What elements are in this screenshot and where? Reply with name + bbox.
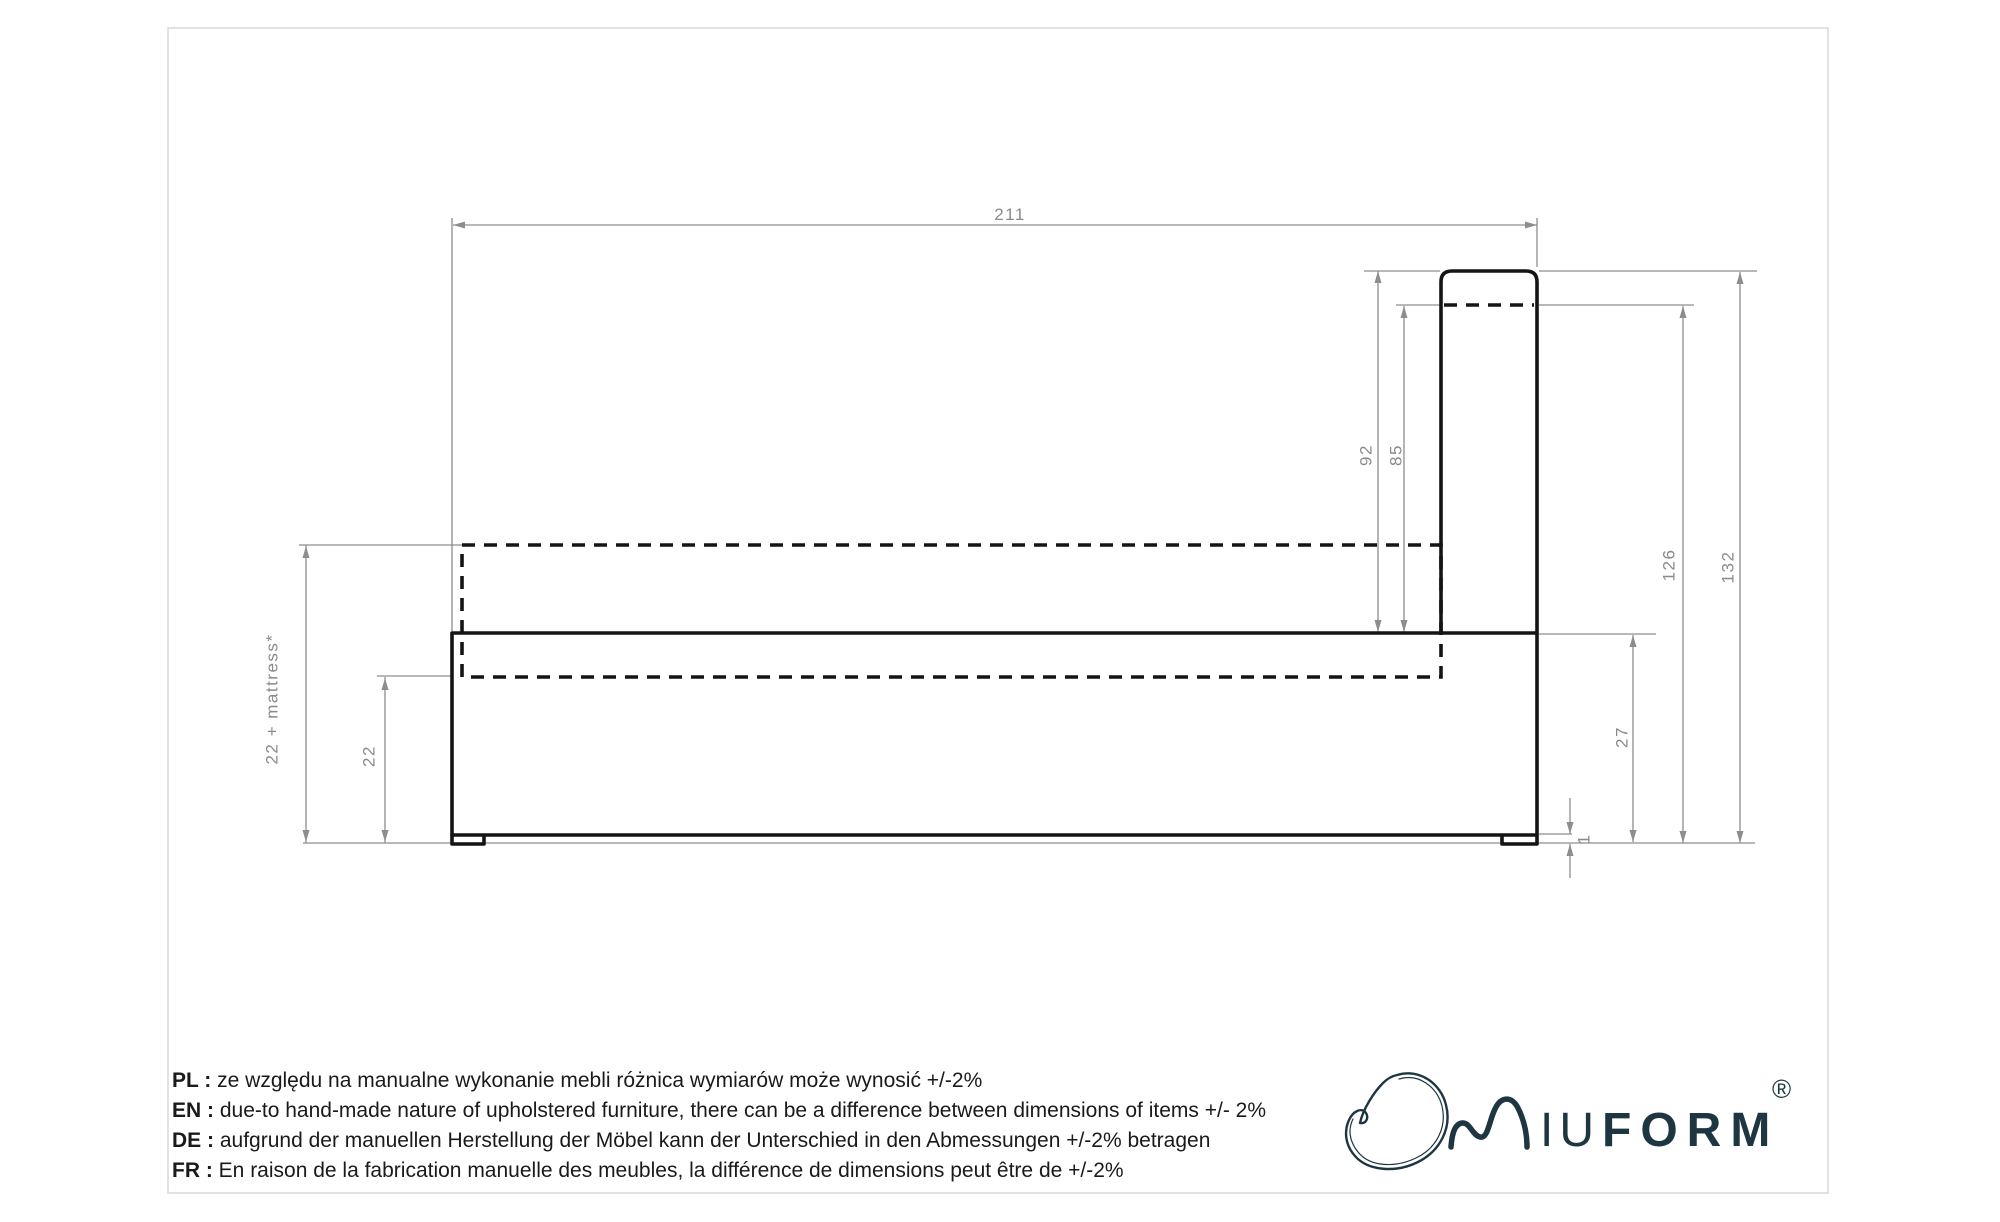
miuform-bean-icon-inner <box>1350 1078 1443 1165</box>
sheet-border <box>168 28 1828 1193</box>
bed-technical-drawing: 211 92 85 126 132 27 22 22 + mattress* 1 <box>0 0 2000 1222</box>
bed-frame <box>452 633 1537 835</box>
note-label-de: DE : <box>172 1129 214 1152</box>
note-label-en: EN : <box>172 1099 214 1122</box>
note-label-fr: FR : <box>172 1159 213 1182</box>
dim-132-label: 132 <box>1719 551 1738 584</box>
dimension-labels: 211 92 85 126 132 27 22 22 + mattress* 1 <box>263 205 1738 844</box>
headboard <box>1441 271 1537 633</box>
dim-126-label: 126 <box>1660 549 1679 582</box>
mattress-dashed-rect <box>462 545 1441 677</box>
registered-trademark-icon: ® <box>1772 1074 1791 1104</box>
note-line-pl: PL : ze względu na manualne wykonanie me… <box>172 1066 1266 1096</box>
note-line-en: EN : due-to hand-made nature of upholste… <box>172 1096 1266 1126</box>
note-line-de: DE : aufgrund der manuellen Herstellung … <box>172 1126 1266 1156</box>
dim-211-label: 211 <box>994 205 1026 224</box>
note-label-pl: PL : <box>172 1069 211 1092</box>
note-text-en: due-to hand-made nature of upholstered f… <box>220 1099 1266 1122</box>
dim-27-label: 27 <box>1613 726 1632 748</box>
logo-wordmark-thin: IU <box>1540 1104 1600 1157</box>
dim-92-label: 92 <box>1357 444 1376 466</box>
dim-22mattress-label: 22 + mattress* <box>263 633 282 764</box>
miuform-logo: IU FORM ® <box>1346 1073 1791 1169</box>
logo-wordmark-bold: FORM <box>1602 1104 1779 1157</box>
note-text-fr: En raison de la fabrication manuelle des… <box>219 1159 1124 1182</box>
miuform-wave-m-icon <box>1451 1099 1527 1147</box>
tolerance-notes: PL : ze względu na manualne wykonanie me… <box>172 1066 1266 1186</box>
drawing-sheet: 211 92 85 126 132 27 22 22 + mattress* 1 <box>0 0 2000 1222</box>
note-text-pl: ze względu na manualne wykonanie mebli r… <box>217 1069 982 1092</box>
dim-1-label: 1 <box>1575 834 1594 845</box>
dim-22-label: 22 <box>360 745 379 767</box>
mattress-hidden-outline <box>462 305 1534 677</box>
note-line-fr: FR : En raison de la fabrication manuell… <box>172 1156 1266 1186</box>
bed-outline <box>452 271 1537 844</box>
dim-85-label: 85 <box>1387 444 1406 466</box>
note-text-de: aufgrund der manuellen Herstellung der M… <box>220 1129 1211 1152</box>
